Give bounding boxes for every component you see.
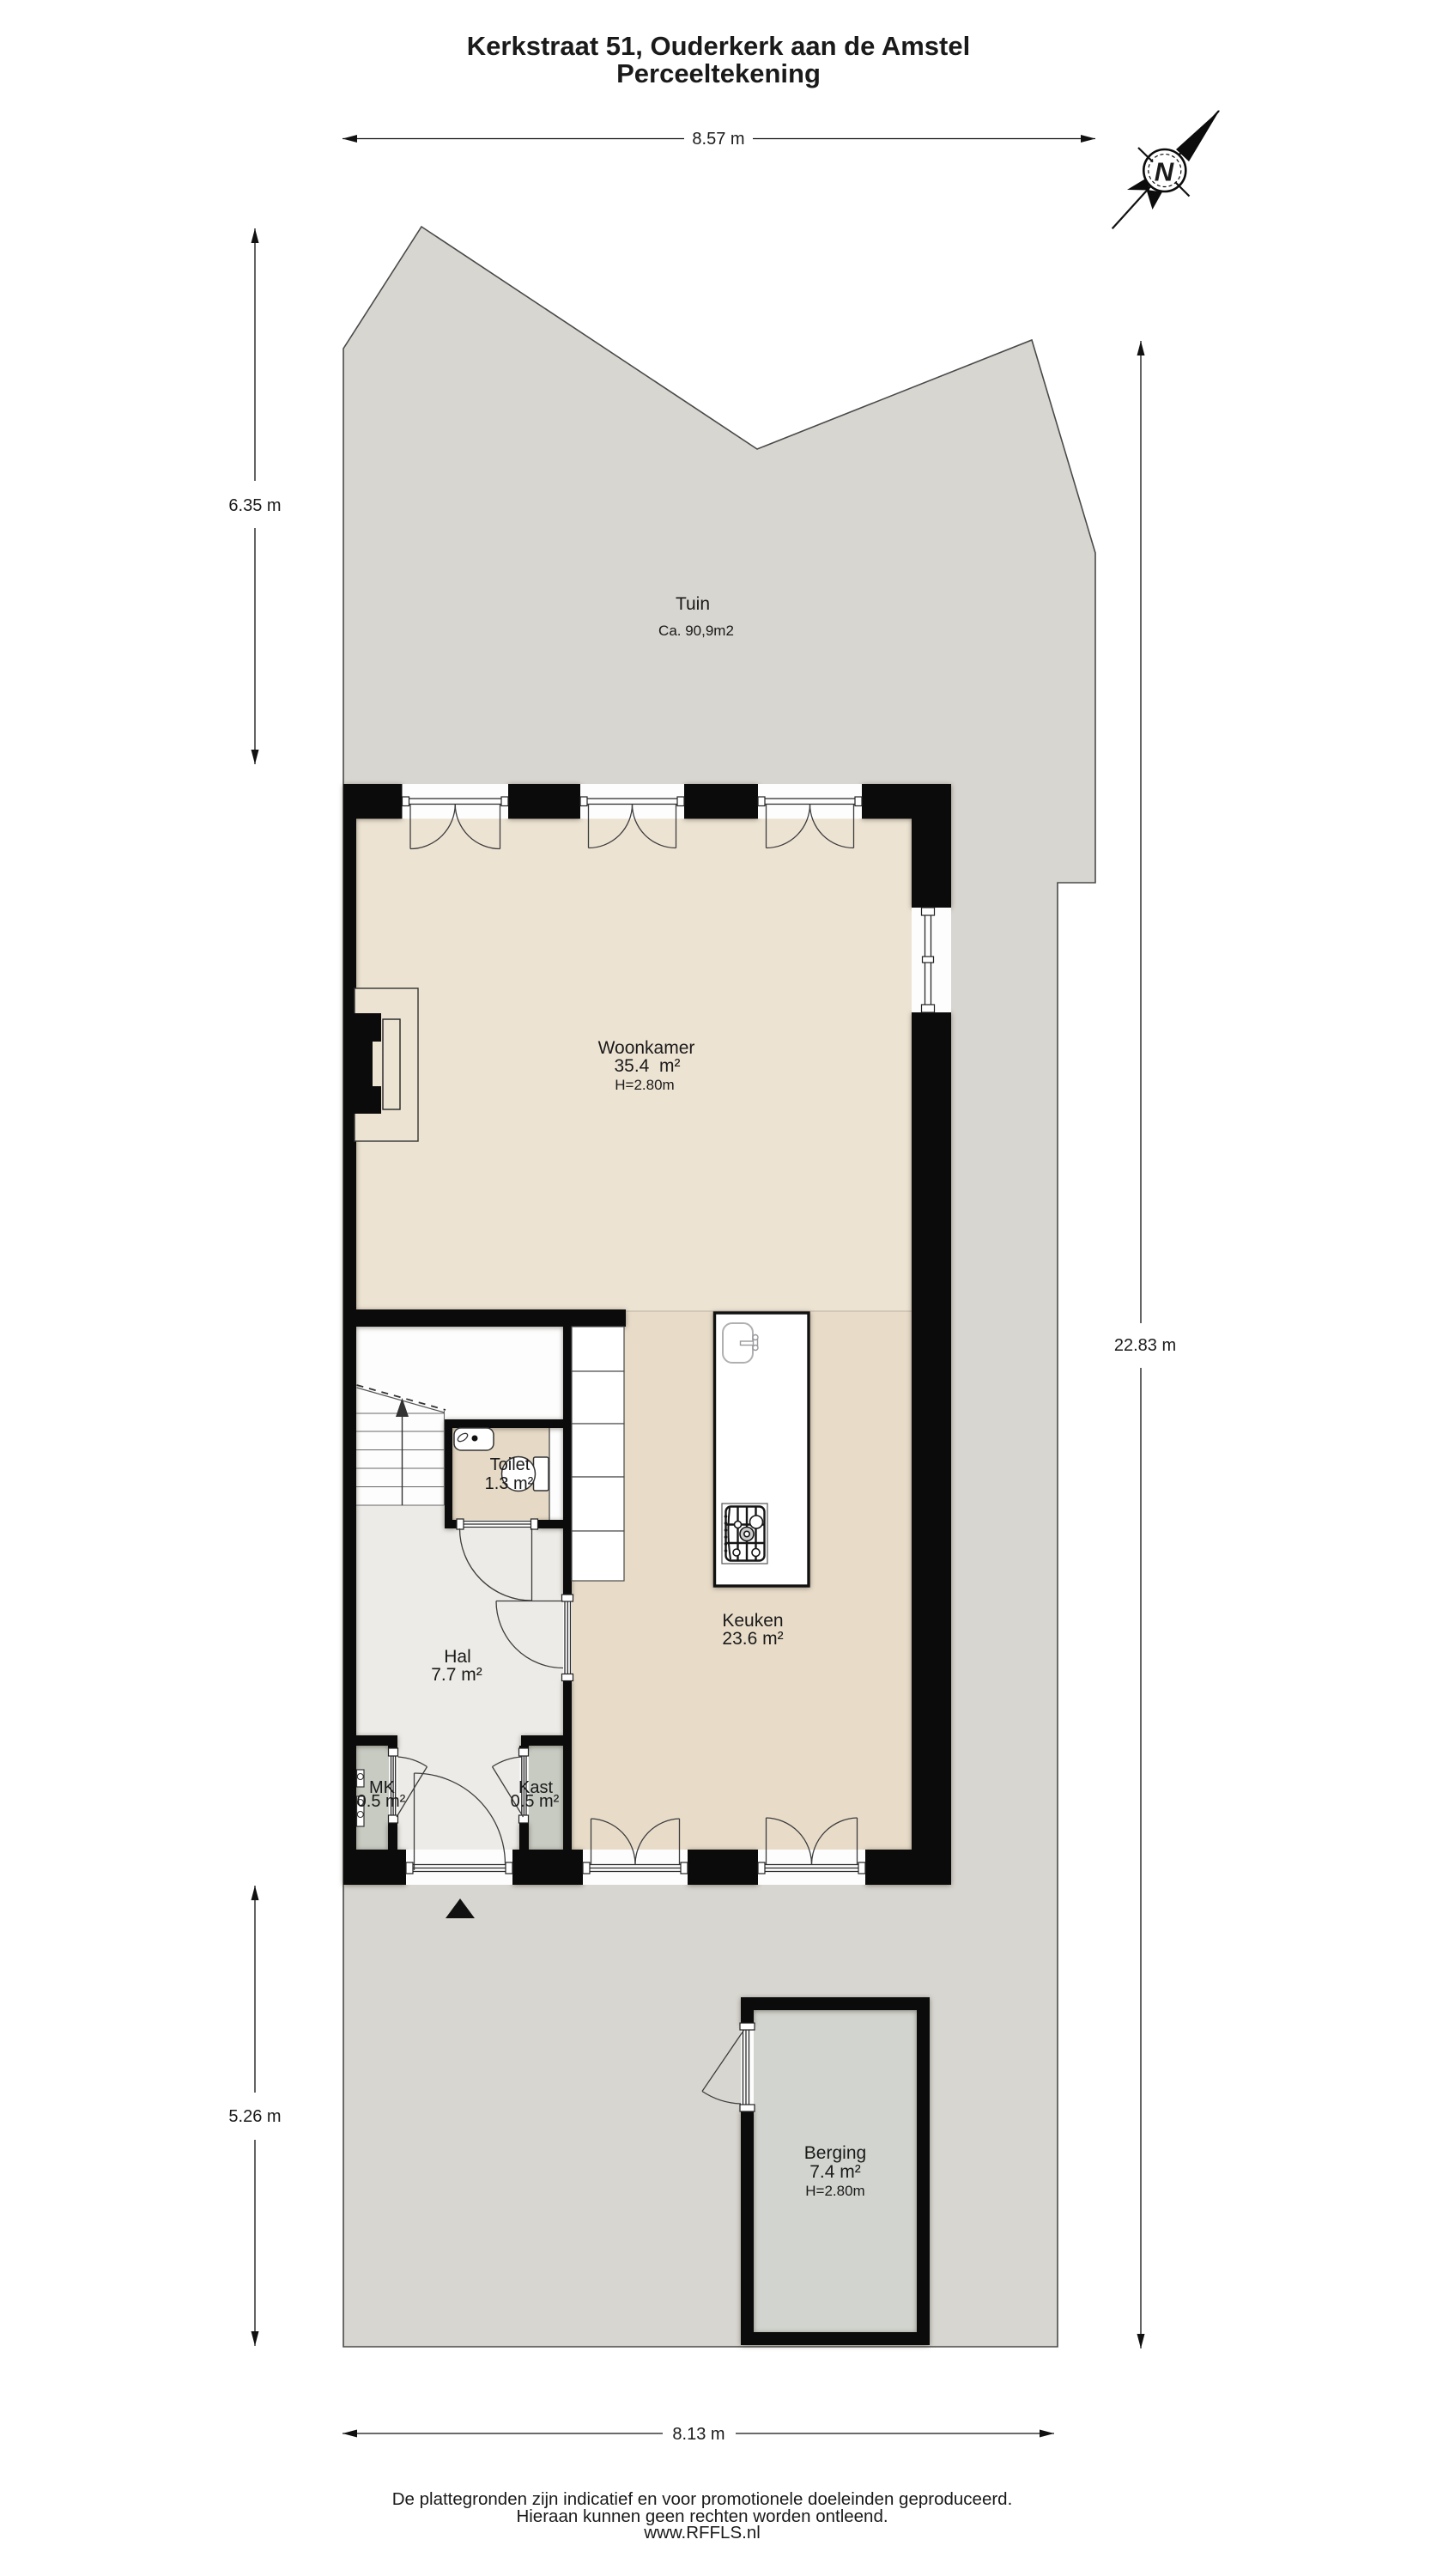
svg-text:5.26 m: 5.26 m — [228, 2107, 281, 2126]
svg-text:Keuken: Keuken — [722, 1611, 783, 1631]
svg-text:0.5 m²: 0.5 m² — [511, 1792, 560, 1811]
svg-text:8.13 m: 8.13 m — [672, 2425, 724, 2444]
svg-text:23.6 m²: 23.6 m² — [722, 1629, 783, 1649]
svg-text:7.4 m²: 7.4 m² — [809, 2162, 861, 2182]
svg-text:Hal: Hal — [444, 1647, 471, 1667]
svg-text:H=2.80m: H=2.80m — [615, 1077, 674, 1093]
svg-text:0.5 m²: 0.5 m² — [357, 1792, 406, 1811]
svg-text:Woonkamer: Woonkamer — [598, 1038, 695, 1058]
svg-text:Perceeltekening: Perceeltekening — [616, 58, 821, 88]
svg-text:H=2.80m: H=2.80m — [805, 2183, 864, 2199]
svg-text:N: N — [1155, 157, 1174, 187]
svg-text:Tuin: Tuin — [676, 594, 710, 614]
svg-text:7.7 m²: 7.7 m² — [431, 1665, 482, 1685]
svg-text:8.57 m: 8.57 m — [692, 130, 744, 149]
svg-text:1.3 m²: 1.3 m² — [485, 1474, 534, 1493]
svg-text:www.RFFLS.nl: www.RFFLS.nl — [643, 2523, 761, 2543]
svg-text:35.4 m²: 35.4 m² — [614, 1056, 680, 1076]
svg-text:22.83 m: 22.83 m — [1114, 1336, 1176, 1355]
svg-text:Ca. 90,9m2: Ca. 90,9m2 — [658, 623, 734, 639]
svg-text:6.35 m: 6.35 m — [228, 496, 281, 515]
svg-text:Berging: Berging — [804, 2143, 866, 2163]
svg-text:Kerkstraat 51, Ouderkerk aan d: Kerkstraat 51, Ouderkerk aan de Amstel — [467, 31, 970, 61]
svg-text:Toilet: Toilet — [490, 1455, 530, 1474]
